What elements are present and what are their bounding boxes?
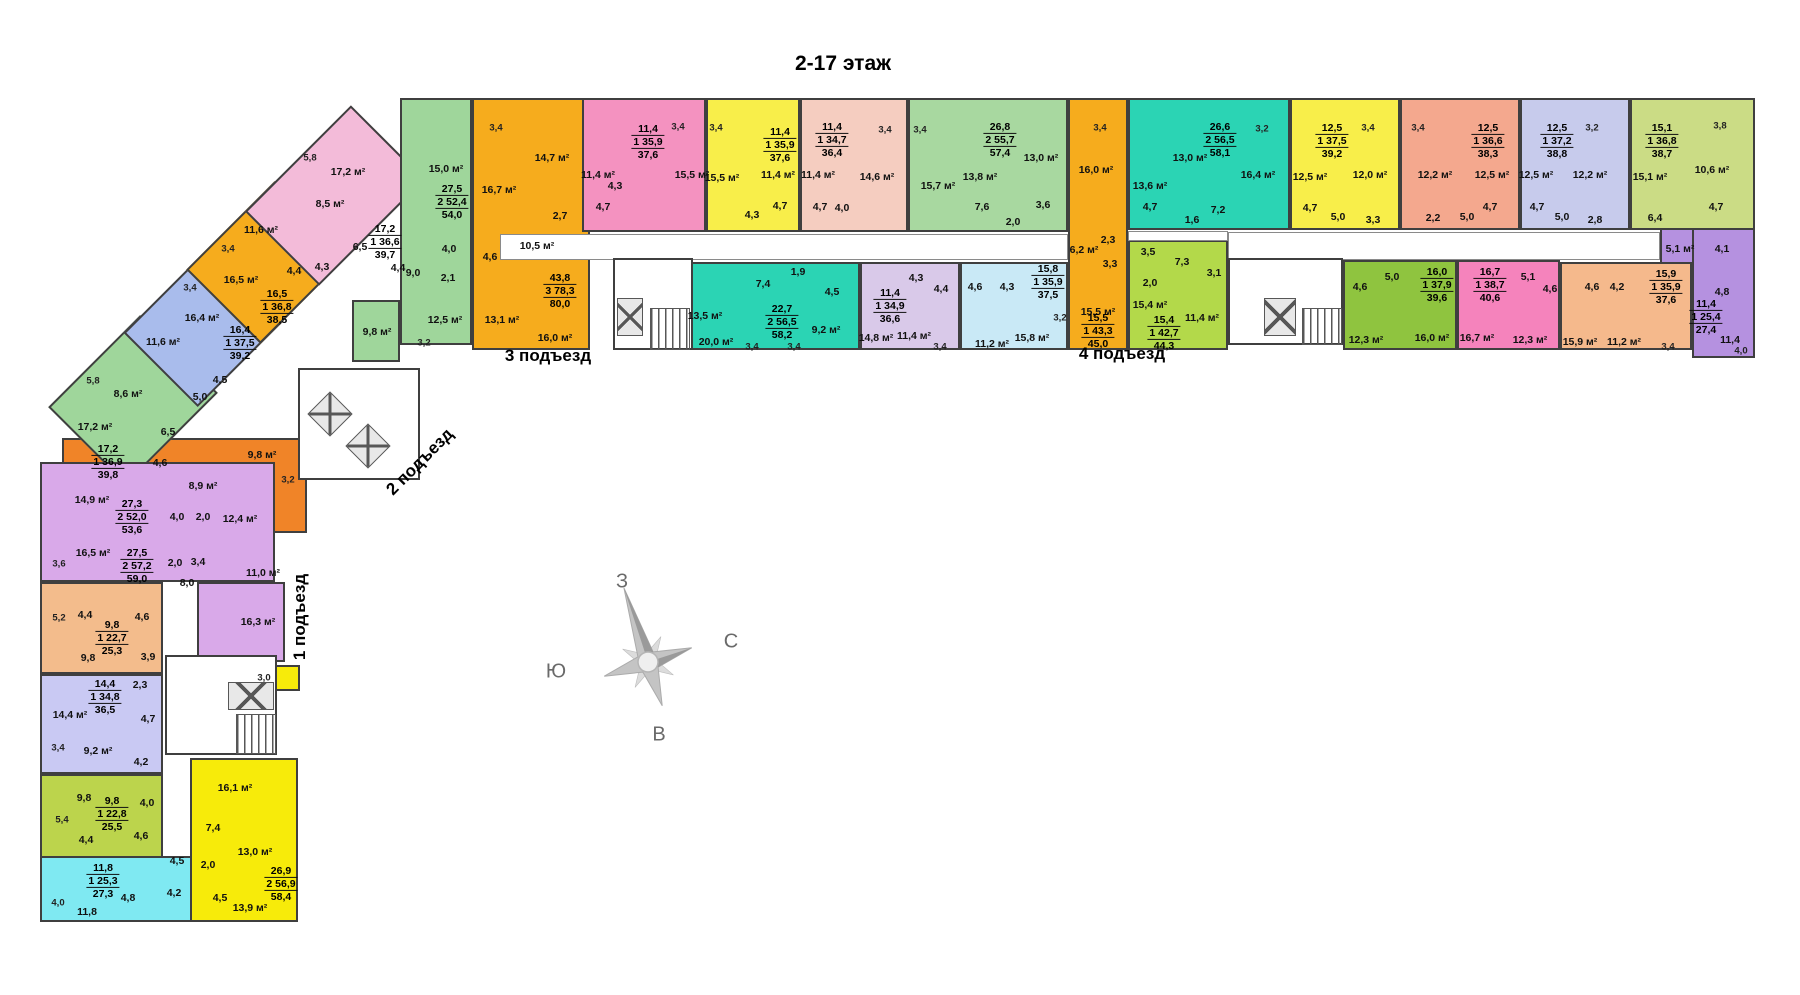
room-area-label: 15,5 м² <box>705 173 740 184</box>
apartment-summary-b5: 16,01 37,939,6 <box>1420 266 1453 304</box>
room-area-label: 4,7 <box>813 202 828 213</box>
room-area-label: 13,0 м² <box>1024 153 1059 164</box>
room-area-label: 4,5 <box>213 375 228 386</box>
apartment-summary-a1: 43,83 78,380,0 <box>543 272 576 310</box>
room-area-label: 4,0 <box>170 512 185 523</box>
room-area-label: 9,0 <box>406 268 421 279</box>
apartment-summary-d2: 16,51 36,838,5 <box>260 288 293 326</box>
room-area-label: 4,6 <box>153 458 168 469</box>
room-area-label: 4,2 <box>134 757 149 768</box>
room-area-label: 4,6 <box>1585 282 1600 293</box>
room-area-label: 14,9 м² <box>75 495 110 506</box>
room-area-label: 2,1 <box>441 273 456 284</box>
room-area-label: 4,7 <box>596 202 611 213</box>
balcony-area-label: 3,4 <box>1361 123 1374 133</box>
apartment-summary-a5: 26,82 55,757,4 <box>983 121 1016 159</box>
room-area-label: 15,8 м² <box>1015 333 1050 344</box>
room-area-label: 11,2 м² <box>975 339 1009 350</box>
apartment-summary-a9: 12,51 36,638,3 <box>1471 122 1504 160</box>
room-area-label: 16,0 м² <box>1079 165 1114 176</box>
balcony-area-label: 3,4 <box>787 342 800 352</box>
room-area-label: 2,3 <box>1101 235 1116 246</box>
balcony-area-label: 3,4 <box>709 123 722 133</box>
room-area-label: 2,0 <box>168 558 183 569</box>
balcony-area-label: 3,4 <box>221 244 234 254</box>
room-area-label: 4,6 <box>134 831 149 842</box>
room-area-label: 8,9 м² <box>189 481 218 492</box>
room-area-label: 12,5 м² <box>1293 172 1328 183</box>
balcony-area-label: 3,2 <box>1255 124 1268 134</box>
room-area-label: 2,2 <box>1426 213 1441 224</box>
apartment-g1[interactable] <box>400 98 472 345</box>
room-area-label: 14,8 м² <box>859 333 894 344</box>
room-area-label: 4,3 <box>608 181 623 192</box>
apartment-summary-v1: 27,52 57,259,0 <box>120 547 153 585</box>
room-area-label: 5,1 м² <box>1666 244 1695 255</box>
stairs-icon <box>236 714 276 754</box>
room-area-label: 1,6 <box>1185 215 1200 226</box>
floor-plan: 2-17 этаж 9,8 м²3,28,9 м²14,9 м²4,02,012… <box>0 0 1800 995</box>
room-area-label: 4,0 <box>442 244 457 255</box>
apartment-summary-d1: 17,21 36,639,7 <box>368 223 401 261</box>
room-area-label: 11,4 м² <box>761 170 795 181</box>
room-area-label: 12,5 м² <box>1475 170 1510 181</box>
room-area-label: 3,3 <box>1366 215 1381 226</box>
room-area-label: 8,0 <box>180 578 195 589</box>
room-area-label: 12,2 м² <box>1573 170 1608 181</box>
room-area-label: 7,6 <box>975 202 990 213</box>
balcony-area-label: 5,4 <box>55 815 68 825</box>
balcony-area-label: 3,4 <box>51 743 64 753</box>
balcony-area-label: 3,2 <box>1585 123 1598 133</box>
apartment-summary-d3: 16,41 37,539,2 <box>223 324 256 362</box>
room-area-label: 4,6 <box>483 252 498 263</box>
stairs-icon <box>650 308 690 350</box>
room-area-label: 11,8 <box>77 907 97 918</box>
room-area-label: 16,4 м² <box>1241 170 1276 181</box>
room-area-label: 15,9 м² <box>1563 337 1598 348</box>
room-area-label: 2,0 <box>196 512 211 523</box>
room-area-label: 4,3 <box>1000 282 1015 293</box>
corridor <box>500 234 1068 260</box>
balcony-area-label: 4,0 <box>1734 346 1747 356</box>
balcony-area-label: 5,2 <box>52 613 65 623</box>
room-area-label: 4,6 <box>135 612 150 623</box>
balcony-area-label: 3,4 <box>933 342 946 352</box>
room-area-label: 5,1 <box>1521 272 1536 283</box>
room-area-label: 4,6 <box>1353 282 1368 293</box>
room-area-label: 13,5 м² <box>688 311 723 322</box>
room-area-label: 5,0 <box>1385 272 1400 283</box>
room-area-label: 4,2 <box>1610 282 1625 293</box>
room-area-label: 17,2 м² <box>331 167 366 178</box>
room-area-label: 12,5 м² <box>1519 170 1554 181</box>
apartment-summary-d4: 17,21 36,939,8 <box>91 443 124 481</box>
room-area-label: 13,0 м² <box>1173 153 1208 164</box>
room-area-label: 12,0 м² <box>1353 170 1388 181</box>
room-area-label: 3,4 <box>191 557 206 568</box>
room-area-label: 10,5 м² <box>520 241 555 252</box>
room-area-label: 16,7 м² <box>1460 333 1495 344</box>
room-area-label: 9,8 <box>77 793 92 804</box>
apartment-summary-a11: 15,11 36,838,7 <box>1645 122 1678 160</box>
room-area-label: 12,5 м² <box>428 315 463 326</box>
room-area-label: 5,0 <box>1331 212 1346 223</box>
apartment-summary-a12: 11,41 25,427,4 <box>1689 298 1722 336</box>
compass-rose <box>563 577 733 752</box>
room-area-label: 4,5 <box>825 287 840 298</box>
entrance-label-4: 4 подъезд <box>1079 344 1165 364</box>
room-area-label: 9,8 м² <box>363 327 392 338</box>
room-area-label: 13,9 м² <box>233 903 268 914</box>
room-area-label: 11,6 м² <box>146 337 180 348</box>
room-area-label: 4,7 <box>773 201 788 212</box>
room-area-label: 16,5 м² <box>224 275 259 286</box>
room-area-label: 2,3 <box>133 680 148 691</box>
room-area-label: 4,0 <box>835 203 850 214</box>
room-area-label: 15,4 м² <box>1133 300 1168 311</box>
apartment-summary-v6: 26,92 56,958,4 <box>264 865 297 903</box>
room-area-label: 8,6 м² <box>114 389 143 400</box>
balcony-area-label: 5,8 <box>303 153 316 163</box>
apartment-summary-b2: 11,41 34,936,6 <box>873 287 906 325</box>
room-area-label: 7,4 <box>206 823 221 834</box>
apartment-summary-v5: 11,81 25,327,3 <box>86 862 119 900</box>
room-area-label: 12,3 м² <box>1513 335 1548 346</box>
room-area-label: 3,1 <box>1207 268 1222 279</box>
room-area-label: 4,3 <box>909 273 924 284</box>
apartment-summary-b7: 15,91 35,937,6 <box>1649 268 1682 306</box>
room-area-label: 13,8 м² <box>963 172 998 183</box>
room-area-label: 4,7 <box>1483 202 1498 213</box>
elevator-icon <box>617 298 643 336</box>
apartment-summary-b3: 15,81 35,937,5 <box>1031 263 1064 301</box>
page-title: 2-17 этаж <box>795 52 891 76</box>
room-area-label: 9,8 м² <box>248 450 277 461</box>
room-area-label: 17,2 м² <box>78 422 113 433</box>
stairs-icon <box>1302 308 1342 345</box>
balcony-area-label: 3,4 <box>489 123 502 133</box>
room-area-label: 5,0 <box>1555 212 1570 223</box>
room-area-label: 5,0 <box>1460 212 1475 223</box>
apartment-summary-v4: 9,81 22,825,5 <box>95 795 128 833</box>
room-area-label: 3,6 <box>1036 200 1051 211</box>
room-area-label: 9,2 м² <box>84 746 113 757</box>
room-area-label: 4,7 <box>1530 202 1545 213</box>
room-area-label: 8,5 м² <box>316 199 345 210</box>
room-area-label: 11,6 м² <box>244 225 278 236</box>
room-area-label: 16,7 м² <box>482 185 517 196</box>
balcony-area-label: 3,8 <box>1713 121 1726 131</box>
room-area-label: 15,1 м² <box>1633 172 1668 183</box>
apartment-summary-a2: 11,41 35,937,6 <box>631 123 664 161</box>
room-area-label: 5,0 <box>193 392 208 403</box>
room-area-label: 7,4 <box>756 279 771 290</box>
room-area-label: 4,4 <box>78 610 93 621</box>
apartment-summary-a8: 12,51 37,539,2 <box>1315 122 1348 160</box>
room-area-label: 3,9 <box>141 652 156 663</box>
room-area-label: 16,5 м² <box>76 548 111 559</box>
balcony-area-label: 3,4 <box>1093 123 1106 133</box>
balcony-area-label: 3,2 <box>281 475 294 485</box>
room-area-label: 13,1 м² <box>485 315 520 326</box>
room-area-label: 11,0 м² <box>246 568 280 579</box>
room-area-label: 2,8 <box>1588 215 1603 226</box>
balcony-area-label: 3,4 <box>183 283 196 293</box>
room-area-label: 13,6 м² <box>1133 181 1168 192</box>
balcony-area-label: 3,4 <box>745 342 758 352</box>
balcony-area-label: 5,8 <box>86 376 99 386</box>
room-area-label: 4,7 <box>1143 202 1158 213</box>
apartment-summary-v2: 9,81 22,725,3 <box>95 619 128 657</box>
room-area-label: 14,4 м² <box>53 710 88 721</box>
apartment-summary-g1: 27,52 52,454,0 <box>435 183 468 221</box>
room-area-label: 15,0 м² <box>429 164 464 175</box>
room-area-label: 4,3 <box>315 262 330 273</box>
entrance-label-1: 1 подъезд <box>290 574 310 660</box>
room-area-label: 7,3 <box>1175 257 1190 268</box>
room-area-label: 16,0 м² <box>538 333 573 344</box>
room-area-label: 11,4 м² <box>897 331 931 342</box>
elevator-icon <box>228 682 274 710</box>
balcony-area-label: 3,4 <box>878 125 891 135</box>
apartment-a11[interactable] <box>1630 98 1755 230</box>
room-area-label: 12,3 м² <box>1349 335 1384 346</box>
balcony-area-label: 3,6 <box>52 559 65 569</box>
room-area-label: 6,2 м² <box>1070 245 1099 256</box>
stair-core-3 <box>298 368 420 480</box>
room-area-label: 12,2 м² <box>1418 170 1453 181</box>
balcony-area-label: 3,4 <box>1411 123 1424 133</box>
room-area-label: 4,7 <box>1709 202 1724 213</box>
room-area-label: 4,4 <box>391 263 406 274</box>
room-area-label: 4,1 <box>1715 244 1730 255</box>
room-area-label: 11,4 <box>1720 335 1740 346</box>
room-area-label: 14,7 м² <box>535 153 570 164</box>
room-area-label: 10,6 м² <box>1695 165 1730 176</box>
apartment-summary-v3: 14,41 34,836,5 <box>88 678 121 716</box>
room-area-label: 2,0 <box>201 860 216 871</box>
balcony-area-label: 3,0 <box>257 673 270 683</box>
room-area-label: 4,8 <box>121 893 136 904</box>
room-area-label: 12,4 м² <box>223 514 258 525</box>
apartment-summary-b6: 16,71 38,740,6 <box>1473 266 1506 304</box>
room-area-label: 11,2 м² <box>1607 337 1641 348</box>
room-area-label: 14,6 м² <box>860 172 895 183</box>
corridor <box>1128 231 1228 241</box>
room-area-label: 4,6 <box>1543 284 1558 295</box>
apartment-summary-d5: 27,32 52,053,6 <box>115 498 148 536</box>
room-area-label: 4,4 <box>79 835 94 846</box>
apartment-summary-a4: 11,41 34,736,4 <box>815 121 848 159</box>
elevator-icon <box>1264 298 1296 336</box>
room-area-label: 16,0 м² <box>1415 333 1450 344</box>
room-area-label: 3,3 <box>1103 259 1118 270</box>
apartment-a1[interactable] <box>472 98 590 350</box>
room-area-label: 13,0 м² <box>238 847 273 858</box>
corridor <box>1228 232 1660 260</box>
room-area-label: 16,4 м² <box>185 313 220 324</box>
room-area-label: 11,4 м² <box>1185 313 1219 324</box>
room-area-label: 4,7 <box>141 714 156 725</box>
room-area-label: 4,3 <box>745 210 760 221</box>
room-area-label: 16,1 м² <box>218 783 253 794</box>
room-area-label: 6,5 <box>353 242 368 253</box>
room-area-label: 4,0 <box>140 798 155 809</box>
balcony-area-label: 3,2 <box>1053 313 1066 323</box>
room-area-label: 4,2 <box>167 888 182 899</box>
room-area-label: 15,7 м² <box>921 181 956 192</box>
balcony-area-label: 3,4 <box>1661 342 1674 352</box>
room-area-label: 4,4 <box>934 284 949 295</box>
room-area-label: 4,5 <box>170 856 185 867</box>
room-area-label: 6,5 <box>161 427 176 438</box>
room-area-label: 4,4 <box>287 266 302 277</box>
apartment-summary-a3: 11,41 35,937,6 <box>763 126 796 164</box>
room-area-label: 4,6 <box>968 282 983 293</box>
room-area-label: 11,4 м² <box>581 170 615 181</box>
room-area-label: 9,8 <box>81 653 96 664</box>
room-area-label: 4,8 <box>1715 287 1730 298</box>
room-area-label: 20,0 м² <box>699 337 734 348</box>
room-area-label: 2,0 <box>1006 217 1021 228</box>
apartment-summary-b1: 22,72 56,558,2 <box>765 303 798 341</box>
balcony-area-label: 3,4 <box>913 125 926 135</box>
entrance-label-3: 3 подъезд <box>505 346 591 366</box>
balcony-area-label: 4,0 <box>51 898 64 908</box>
room-area-label: 9,2 м² <box>812 325 841 336</box>
room-area-label: 4,5 <box>213 893 228 904</box>
room-area-label: 4,7 <box>1303 203 1318 214</box>
room-area-label: 3,5 <box>1141 247 1156 258</box>
room-area-label: 1,9 <box>791 267 806 278</box>
room-area-label: 11,4 м² <box>801 170 835 181</box>
balcony-area-label: 3,4 <box>671 122 684 132</box>
apartment-summary-a7: 26,62 56,558,1 <box>1203 121 1236 159</box>
balcony-area-label: 3,2 <box>417 338 430 348</box>
apartment-summary-a10: 12,51 37,238,8 <box>1540 122 1573 160</box>
room-area-label: 2,0 <box>1143 278 1158 289</box>
room-area-label: 6,4 <box>1648 213 1663 224</box>
room-area-label: 2,7 <box>553 211 568 222</box>
room-area-label: 16,3 м² <box>241 617 276 628</box>
room-area-label: 7,2 <box>1211 205 1226 216</box>
